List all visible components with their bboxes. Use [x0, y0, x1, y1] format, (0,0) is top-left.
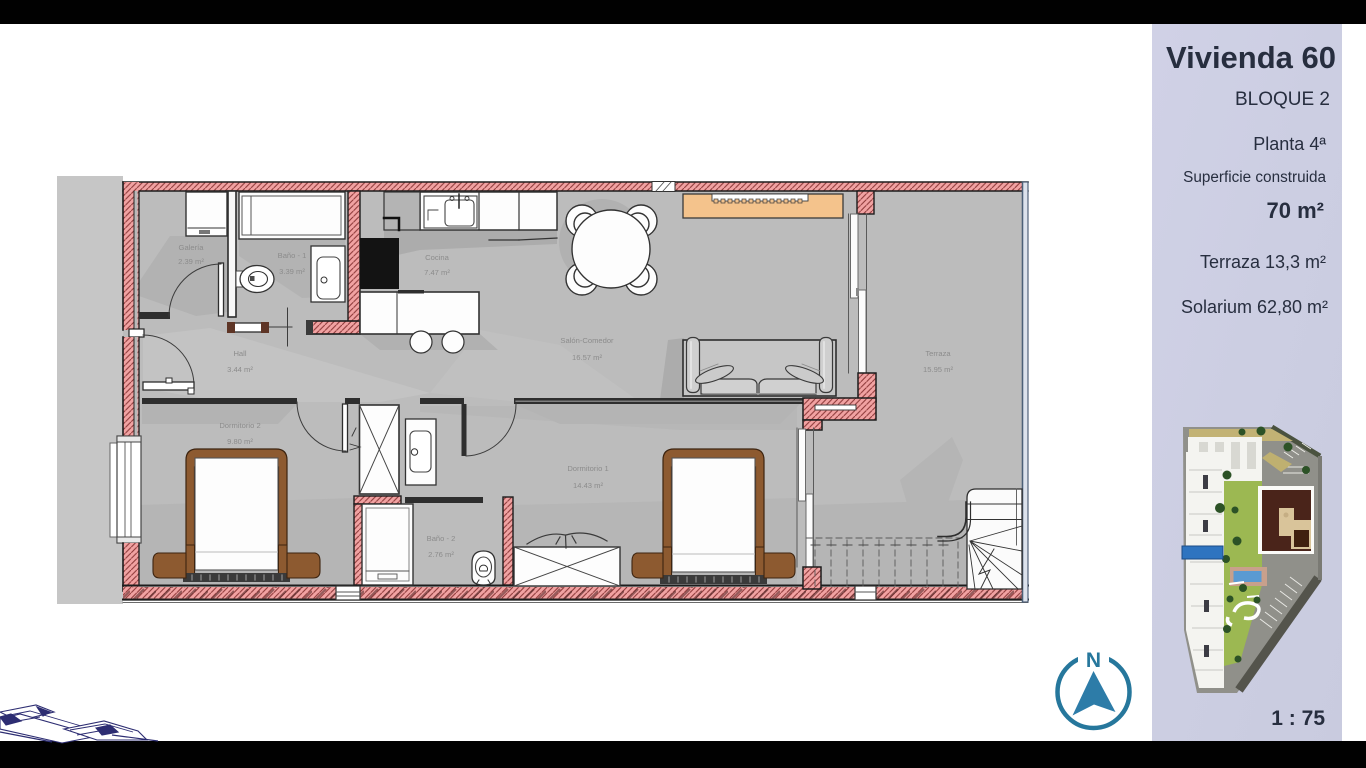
svg-text:Superficie construida: Superficie construida	[1183, 169, 1326, 186]
svg-text:BLOQUE 2: BLOQUE 2	[1235, 89, 1330, 110]
svg-text:Solarium 62,80 m²: Solarium 62,80 m²	[1181, 297, 1328, 317]
svg-text:Dormitorio 2: Dormitorio 2	[219, 421, 260, 430]
svg-text:Terraza 13,3 m²: Terraza 13,3 m²	[1200, 252, 1326, 272]
svg-text:N: N	[1086, 649, 1101, 672]
svg-text:9.80 m²: 9.80 m²	[227, 437, 253, 446]
svg-text:Hall: Hall	[233, 349, 246, 358]
svg-text:1 : 75: 1 : 75	[1271, 707, 1325, 730]
svg-text:16.57 m²: 16.57 m²	[572, 353, 602, 362]
svg-text:Terraza: Terraza	[925, 349, 951, 358]
svg-text:15.95 m²: 15.95 m²	[923, 365, 953, 374]
svg-text:Galería: Galería	[179, 243, 205, 252]
svg-text:2.76 m²: 2.76 m²	[428, 550, 454, 559]
svg-text:2.39 m²: 2.39 m²	[178, 257, 204, 266]
svg-text:Planta 4ª: Planta 4ª	[1253, 134, 1326, 154]
svg-text:Dormitorio 1: Dormitorio 1	[567, 464, 608, 473]
svg-text:3.39 m²: 3.39 m²	[279, 267, 305, 276]
svg-text:14.43 m²: 14.43 m²	[573, 481, 603, 490]
svg-text:Salón-Comedor: Salón-Comedor	[560, 336, 614, 345]
svg-text:70 m²: 70 m²	[1267, 198, 1324, 223]
svg-text:Cocina: Cocina	[425, 253, 449, 262]
svg-text:Baño - 1: Baño - 1	[278, 251, 307, 260]
svg-text:Baño - 2: Baño - 2	[427, 534, 456, 543]
svg-text:7.47 m²: 7.47 m²	[424, 268, 450, 277]
svg-text:Vivienda 60: Vivienda 60	[1166, 40, 1336, 75]
svg-text:3.44 m²: 3.44 m²	[227, 365, 253, 374]
